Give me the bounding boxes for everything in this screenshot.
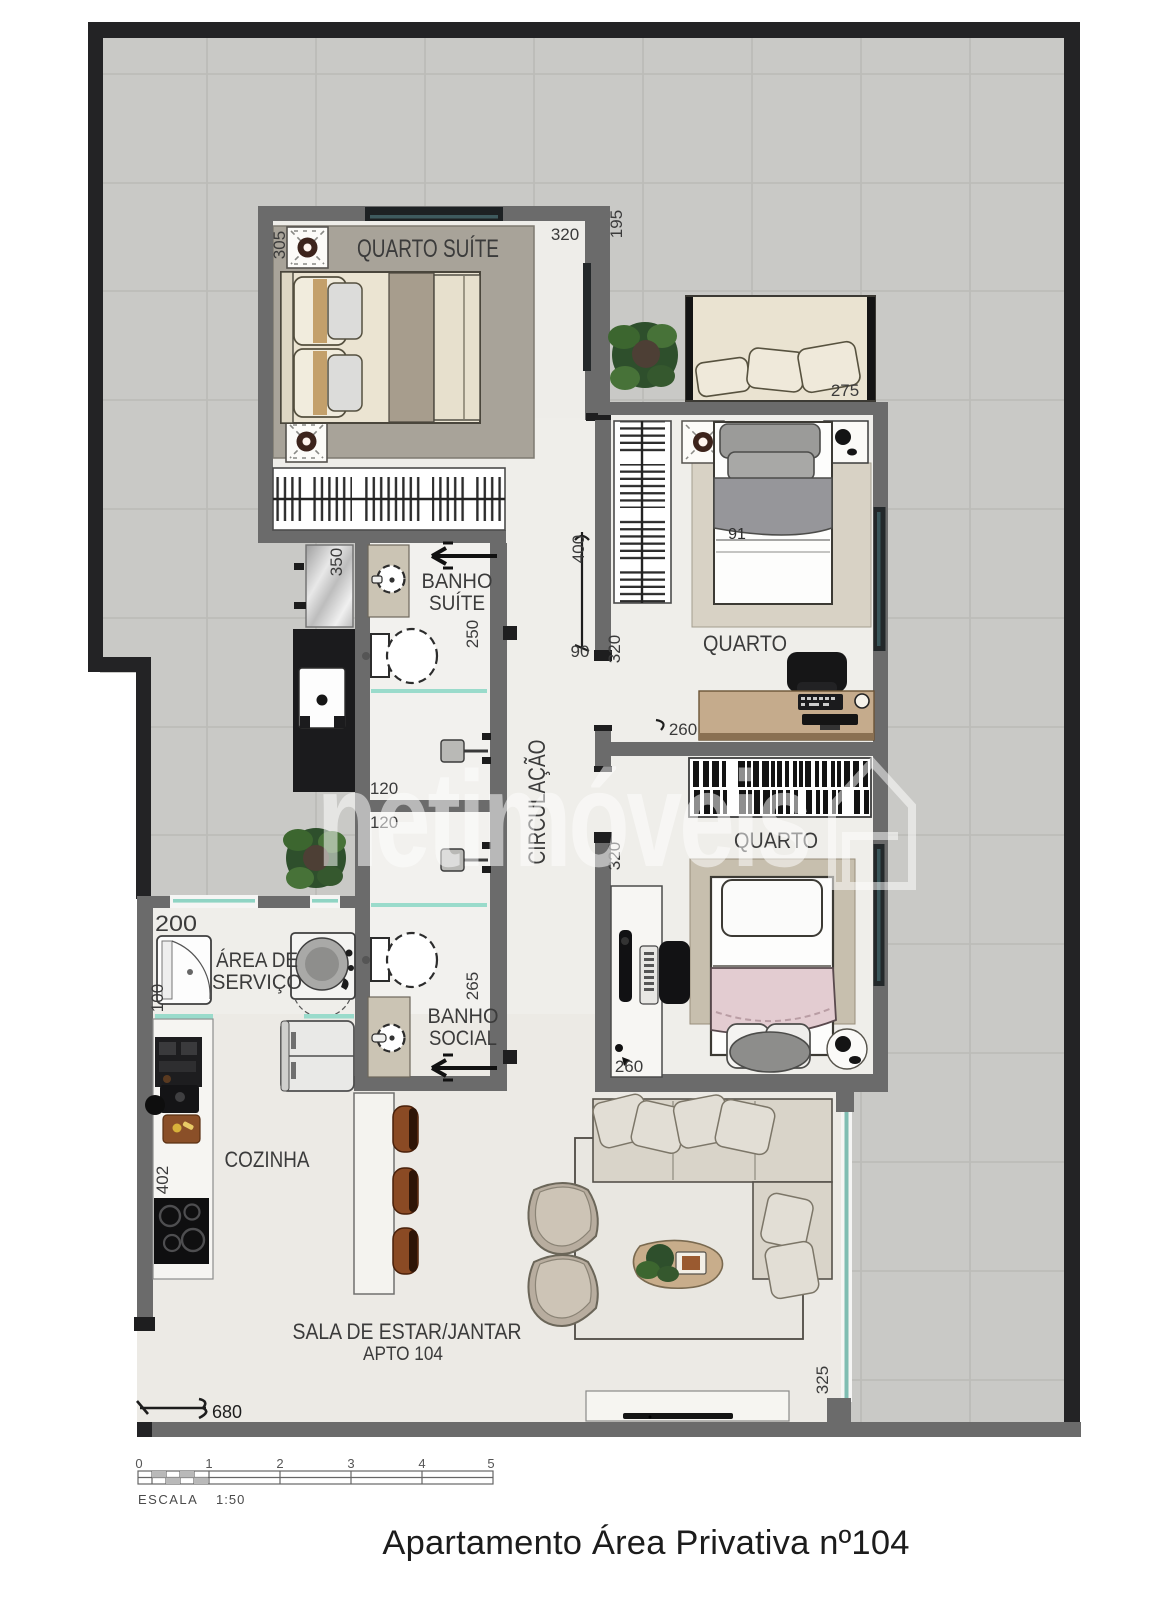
svg-text:320: 320 bbox=[605, 635, 624, 663]
svg-text:90: 90 bbox=[571, 642, 590, 661]
svg-text:275: 275 bbox=[831, 381, 859, 400]
svg-text:260: 260 bbox=[615, 1057, 643, 1076]
svg-text:SALA DE ESTAR/JANTAR: SALA DE ESTAR/JANTAR bbox=[293, 1319, 522, 1344]
svg-text:0: 0 bbox=[135, 1456, 142, 1471]
svg-text:BANHO: BANHO bbox=[428, 1005, 499, 1028]
svg-text:325: 325 bbox=[813, 1366, 832, 1394]
svg-text:1: 1 bbox=[205, 1456, 212, 1471]
svg-text:APTO 104: APTO 104 bbox=[363, 1344, 443, 1365]
svg-text:BANHO: BANHO bbox=[422, 570, 493, 593]
svg-text:5: 5 bbox=[487, 1456, 494, 1471]
svg-text:400: 400 bbox=[569, 535, 588, 563]
svg-text:Apartamento Área Privativa nº1: Apartamento Área Privativa nº104 bbox=[382, 1523, 909, 1562]
svg-text:QUARTO SUÍTE: QUARTO SUÍTE bbox=[357, 234, 499, 263]
svg-text:402: 402 bbox=[153, 1166, 172, 1194]
svg-text:195: 195 bbox=[607, 210, 626, 238]
svg-text:2: 2 bbox=[276, 1456, 283, 1471]
svg-text:SERVIÇO: SERVIÇO bbox=[212, 971, 302, 994]
svg-text:320: 320 bbox=[551, 225, 579, 244]
svg-text:SUÍTE: SUÍTE bbox=[429, 592, 485, 615]
svg-text:265: 265 bbox=[463, 972, 482, 1000]
svg-text:4: 4 bbox=[418, 1456, 425, 1471]
svg-text:350: 350 bbox=[327, 548, 346, 576]
svg-text:260: 260 bbox=[669, 720, 697, 739]
svg-text:3: 3 bbox=[347, 1456, 354, 1471]
svg-text:100: 100 bbox=[148, 984, 167, 1012]
svg-text:netimóveis: netimóveis bbox=[317, 744, 809, 896]
svg-text:COZINHA: COZINHA bbox=[225, 1147, 310, 1172]
svg-text:QUARTO: QUARTO bbox=[703, 631, 787, 656]
svg-text:305: 305 bbox=[270, 231, 289, 259]
svg-text:250: 250 bbox=[463, 620, 482, 648]
svg-text:200: 200 bbox=[155, 911, 197, 936]
svg-text:SOCIAL: SOCIAL bbox=[429, 1027, 497, 1050]
svg-text:91: 91 bbox=[728, 526, 746, 543]
svg-text:ÁREA DE: ÁREA DE bbox=[216, 949, 298, 972]
svg-text:ESCALA: ESCALA bbox=[138, 1492, 198, 1507]
svg-text:1:50: 1:50 bbox=[216, 1492, 245, 1507]
svg-text:680: 680 bbox=[212, 1402, 242, 1422]
